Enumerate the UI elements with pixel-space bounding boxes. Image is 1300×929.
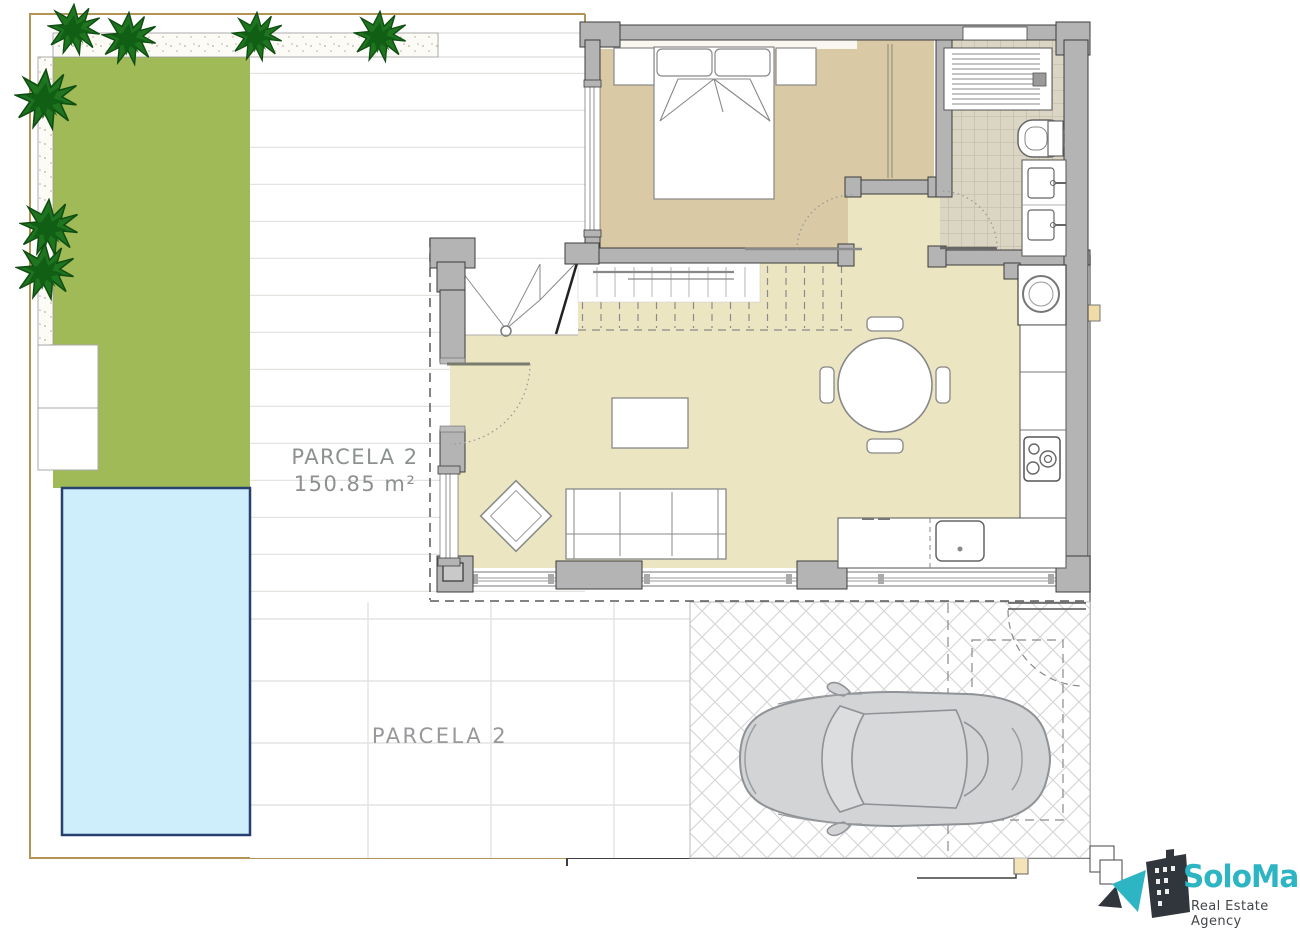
chair-icon <box>867 439 903 453</box>
cooktop-icon <box>1024 437 1060 481</box>
floor-plan-canvas: PARCELA 2 150.85 m² PARCELA 2 SoloMar Re… <box>0 0 1300 928</box>
window <box>963 27 1027 40</box>
parcel-title: PARCELA 2 <box>245 444 465 471</box>
car-top-view-icon <box>740 683 1050 836</box>
logo-tagline: Real Estate Agency <box>1191 899 1300 929</box>
boundary-post <box>1088 305 1100 321</box>
toilet-icon <box>1018 120 1064 157</box>
floor-plan-drawing <box>0 0 1300 928</box>
vanity-sinks <box>1022 160 1066 256</box>
chair-icon <box>867 317 903 331</box>
dining-table <box>838 338 932 432</box>
pillow <box>715 49 770 76</box>
swimming-pool <box>62 488 250 835</box>
kitchen-counter <box>1020 325 1066 518</box>
shower-icon <box>944 48 1052 110</box>
logo-name: SoloMar <box>1183 859 1300 895</box>
garden-steps <box>38 345 98 470</box>
coffee-table-icon <box>612 398 688 448</box>
south-windows <box>452 572 1072 586</box>
parcel-title: PARCELA 2 <box>330 724 550 748</box>
parcel-label-main: PARCELA 2 150.85 m² <box>245 444 465 498</box>
washing-machine-icon <box>1018 265 1066 325</box>
nightstand <box>614 48 654 85</box>
nightstand <box>776 48 816 85</box>
logo <box>1090 846 1190 918</box>
chair-icon <box>820 367 834 403</box>
hallway-floor <box>848 183 940 265</box>
parcel-label-bottom: PARCELA 2 <box>330 724 550 748</box>
staircase <box>452 263 855 336</box>
pillow <box>657 49 712 76</box>
chair-icon <box>936 367 950 403</box>
window <box>584 80 601 237</box>
parcel-area: 150.85 m² <box>245 471 465 498</box>
kitchen-sink-icon <box>936 521 984 561</box>
sofa-icon <box>566 489 726 559</box>
